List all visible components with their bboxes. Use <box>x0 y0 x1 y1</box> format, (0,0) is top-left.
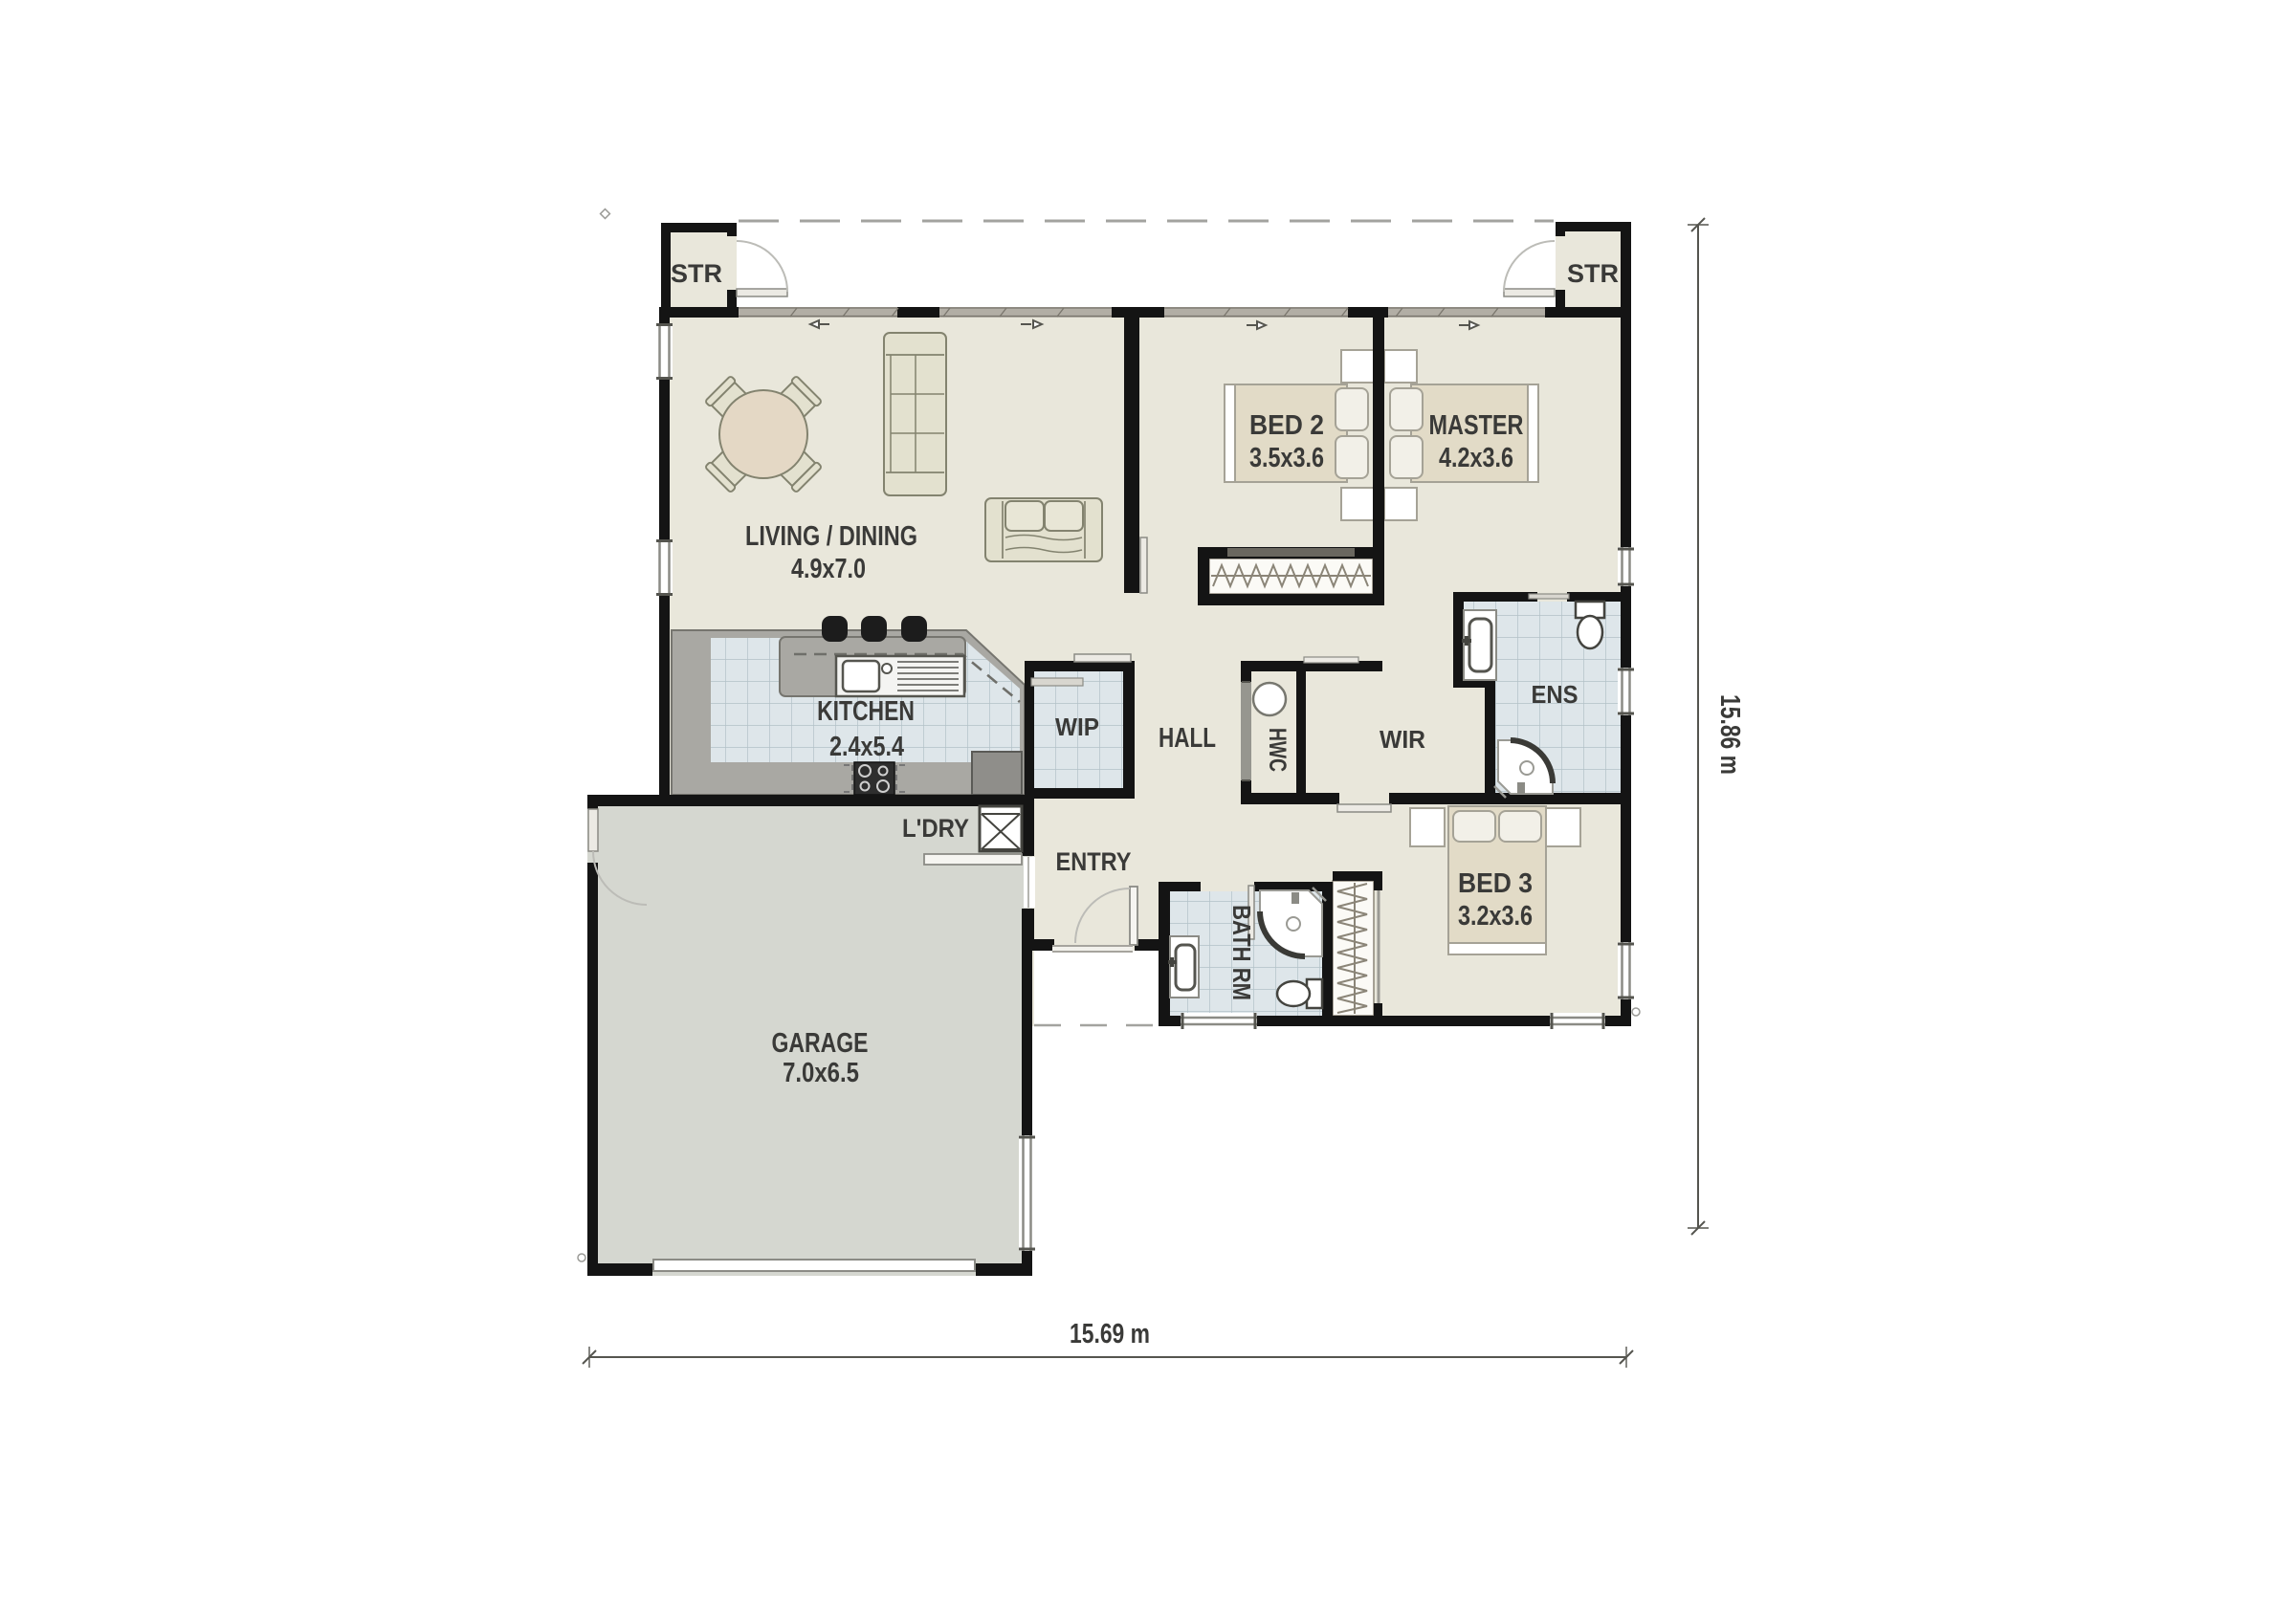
svg-text:4.9x7.0: 4.9x7.0 <box>791 553 866 584</box>
svg-text:STR: STR <box>1567 259 1619 288</box>
svg-text:LIVING / DINING: LIVING / DINING <box>745 520 917 552</box>
svg-text:BATH RM: BATH RM <box>1227 905 1255 1000</box>
svg-text:L'DRY: L'DRY <box>902 815 969 844</box>
svg-text:15.69 m: 15.69 m <box>1070 1317 1150 1349</box>
svg-text:2.4x5.4: 2.4x5.4 <box>829 731 904 762</box>
svg-text:STR: STR <box>671 259 722 288</box>
svg-text:WIP: WIP <box>1055 713 1099 741</box>
svg-text:HWC: HWC <box>1264 728 1291 772</box>
svg-text:3.2x3.6: 3.2x3.6 <box>1458 900 1533 932</box>
svg-text:7.0x6.5: 7.0x6.5 <box>783 1057 859 1088</box>
svg-text:BED 3: BED 3 <box>1458 867 1533 898</box>
svg-text:MASTER: MASTER <box>1429 409 1524 441</box>
svg-text:ENS: ENS <box>1532 681 1578 709</box>
svg-text:4.2x3.6: 4.2x3.6 <box>1439 442 1513 473</box>
svg-text:KITCHEN: KITCHEN <box>817 694 915 726</box>
svg-text:WIR: WIR <box>1380 726 1425 754</box>
svg-text:ENTRY: ENTRY <box>1056 848 1132 877</box>
svg-text:BED 2: BED 2 <box>1249 409 1324 440</box>
svg-text:GARAGE: GARAGE <box>772 1026 869 1058</box>
svg-text:15.86 m: 15.86 m <box>1714 694 1746 775</box>
svg-text:3.5x3.6: 3.5x3.6 <box>1249 442 1324 473</box>
svg-text:HALL: HALL <box>1159 723 1216 753</box>
